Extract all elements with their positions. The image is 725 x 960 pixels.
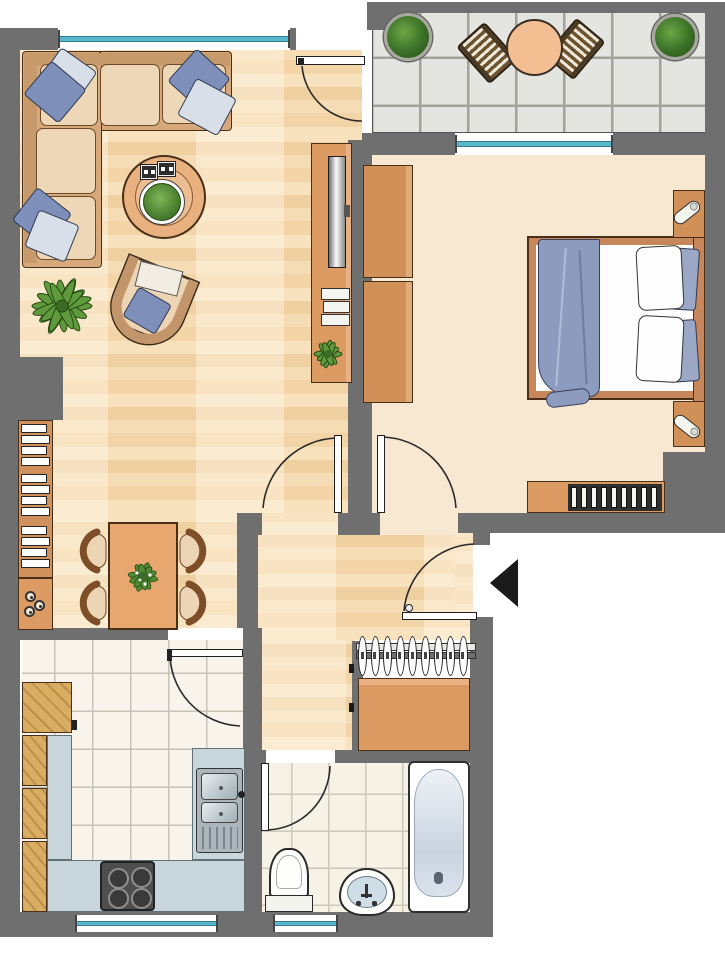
book-stack (21, 424, 47, 433)
cabinet-dish (34, 600, 45, 611)
dining-cabinet (18, 578, 53, 630)
kitchen-door-leaf (168, 649, 243, 657)
wall-stub-left (237, 513, 262, 535)
stove-burner (131, 888, 152, 909)
kitchen-window-glass (75, 921, 218, 926)
stove-burner (108, 888, 129, 909)
balcony-door-handle (298, 58, 304, 64)
wall-right-upper (705, 140, 725, 452)
book-stack (21, 457, 50, 466)
record-slat (601, 487, 607, 508)
washbasin-fitting (356, 901, 361, 906)
coat-hanger (446, 636, 455, 676)
toilet-tank (265, 895, 313, 912)
book-stack (21, 526, 47, 535)
coaster-book (158, 162, 175, 176)
bookshelf-section (18, 524, 53, 574)
window-end (273, 915, 275, 932)
living-window-glass (58, 36, 290, 42)
kitchen-tall-cabinet (22, 682, 72, 733)
washbasin-fitting (372, 901, 377, 906)
balcony-door-leaf (296, 56, 365, 65)
window-end (288, 30, 290, 48)
book-stack (21, 485, 50, 494)
book-stack (21, 548, 47, 557)
cabinet-dish (25, 591, 36, 602)
book-stack (21, 559, 50, 568)
coat-hanger (434, 636, 443, 676)
cabinet-dish (24, 606, 35, 617)
hall-cabinet (358, 678, 470, 751)
wall-left (0, 28, 20, 937)
wall-bath-top-tick (262, 750, 266, 763)
wall-bedroom-top-left (362, 133, 455, 155)
wall-kitchen-hall-divider (237, 535, 258, 628)
entrance-niche-floor (455, 533, 473, 617)
wall-stub-mid (338, 513, 380, 535)
living-door-threshold (262, 513, 338, 535)
stove (100, 861, 155, 911)
window-end (336, 915, 338, 932)
book-stack (21, 435, 50, 444)
counter-left (47, 735, 72, 860)
window-end (216, 915, 218, 932)
bedroom-window-glass (455, 141, 613, 147)
bedroom-door-threshold (380, 513, 458, 535)
book-stack (21, 537, 50, 546)
wall-entrance-step (473, 527, 490, 545)
record-slat (611, 487, 617, 508)
dining-chair (177, 527, 211, 575)
dining-chair (177, 579, 211, 627)
record-slat (571, 487, 577, 508)
book-stack (21, 474, 47, 483)
kitchen-cabinet (22, 788, 47, 839)
coat-hanger (421, 636, 430, 676)
record-slat (641, 487, 647, 508)
stove-burner (131, 867, 152, 888)
sideboard-plant (308, 332, 348, 376)
stove-burner (108, 868, 129, 889)
wall-top-corner (0, 28, 58, 50)
wall-bottom (0, 912, 493, 937)
coat-rack-hangers (356, 636, 476, 678)
record-slat (581, 487, 587, 508)
book-stack (21, 446, 47, 455)
kitchen-cabinet (22, 841, 47, 912)
tv-foot (344, 205, 350, 217)
floor-plan (0, 0, 725, 960)
bookshelf-section (18, 422, 53, 468)
bathroom-door-leaf (261, 763, 269, 831)
book-stack (21, 496, 47, 505)
bathtub-drain (434, 872, 443, 884)
corridor-floor (258, 640, 355, 750)
coat-hanger (358, 636, 367, 676)
balcony-bush-right (652, 14, 698, 60)
record-slat (651, 487, 657, 508)
book-stack (21, 507, 50, 516)
dining-chair (75, 527, 109, 575)
record-slat (591, 487, 597, 508)
counter-corner-tick (72, 720, 77, 730)
record-rack (568, 484, 662, 511)
wall-balcony-right (705, 2, 725, 152)
window-end (455, 135, 457, 153)
coat-hanger (383, 636, 392, 676)
sofa-cushion (36, 128, 96, 194)
sink-basin (201, 802, 238, 823)
record-slat (631, 487, 637, 508)
dining-centerpiece (123, 556, 163, 598)
window-end (58, 30, 60, 48)
sink-drainboard (202, 827, 238, 849)
window-end (75, 915, 77, 932)
sofa-cushion (100, 64, 160, 126)
sink-faucet (238, 791, 245, 798)
bed-frame-left (529, 238, 536, 398)
entrance-arrow (490, 559, 518, 607)
bedroom-wardrobe-lower (363, 281, 413, 403)
entrance-door-leaf (402, 612, 477, 620)
potted-palm (12, 258, 112, 358)
kitchen-cabinet (22, 735, 47, 786)
wall-pillar-left (0, 357, 63, 420)
coat-hanger (396, 636, 405, 676)
wall-hook-1 (349, 664, 354, 673)
coat-hanger (408, 636, 417, 676)
bedroom-wardrobe-upper (363, 165, 413, 278)
balcony-bush-left (384, 13, 432, 61)
wall-hook-2 (349, 703, 354, 712)
bedroom-door-leaf (377, 435, 385, 513)
bathroom-window-glass (273, 921, 338, 926)
sink-basin (201, 773, 238, 800)
wall-balcony-top (418, 2, 712, 13)
coat-hanger (371, 636, 380, 676)
record-slat (621, 487, 627, 508)
bed-blanket (538, 239, 600, 397)
entrance-door-knob (405, 604, 413, 612)
dining-chair (75, 579, 109, 627)
washbasin-handle (361, 894, 372, 897)
kitchen-door-handle (167, 649, 172, 661)
coaster-book (141, 165, 157, 179)
toilet-bowl (269, 848, 309, 898)
hallway-floor (248, 535, 473, 640)
wall-top-pier (290, 28, 296, 50)
bookshelf-section (18, 472, 53, 518)
wall-kitchen-bath-divider (243, 640, 262, 935)
living-room-door-leaf (334, 435, 342, 513)
window-end (611, 135, 613, 153)
bed-pillow-white (635, 315, 684, 383)
wall-kitchen-top-junction (243, 628, 262, 640)
wall-hall-bottom-right (458, 513, 722, 533)
coat-hanger (459, 636, 468, 676)
stereo-stack (321, 288, 350, 328)
coffee-table-plant (143, 183, 181, 221)
balcony-table (506, 19, 563, 76)
kitchen-sink (196, 768, 243, 853)
bed-pillow-white (635, 245, 684, 311)
